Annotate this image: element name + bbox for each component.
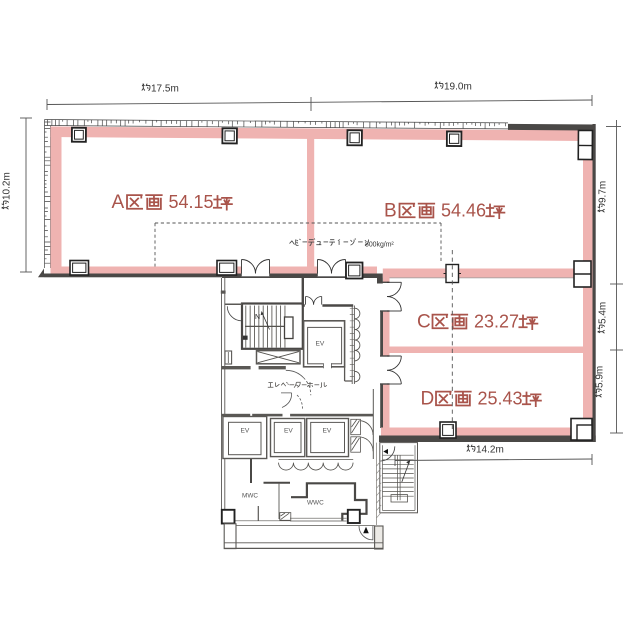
svg-text:23.27: 23.27 (474, 312, 519, 332)
svg-text:9.7m: 9.7m (598, 181, 609, 203)
svg-text:10.2m: 10.2m (2, 172, 13, 200)
svg-text:D: D (421, 389, 435, 410)
svg-text:800kg/m²: 800kg/m² (365, 242, 394, 249)
svg-text:54.15: 54.15 (169, 192, 214, 212)
svg-text:WWC: WWC (307, 500, 324, 507)
svg-text:N: N (255, 314, 260, 321)
svg-text:14.2m: 14.2m (476, 445, 504, 456)
svg-text:5.4m: 5.4m (598, 302, 609, 324)
svg-text:54.46: 54.46 (441, 201, 486, 221)
svg-text:17.5m: 17.5m (151, 84, 179, 95)
svg-text:C: C (417, 312, 431, 333)
svg-text:EV: EV (241, 428, 250, 435)
svg-text:EV: EV (323, 428, 332, 435)
svg-text:25.43: 25.43 (478, 389, 523, 409)
svg-text:B: B (384, 201, 397, 222)
svg-text:A: A (112, 192, 125, 213)
svg-text:EV: EV (316, 341, 325, 348)
svg-text:19.0m: 19.0m (444, 82, 472, 93)
svg-text:EV: EV (284, 428, 293, 435)
svg-text:5.9m: 5.9m (595, 366, 606, 388)
svg-text:MWC: MWC (242, 493, 258, 500)
